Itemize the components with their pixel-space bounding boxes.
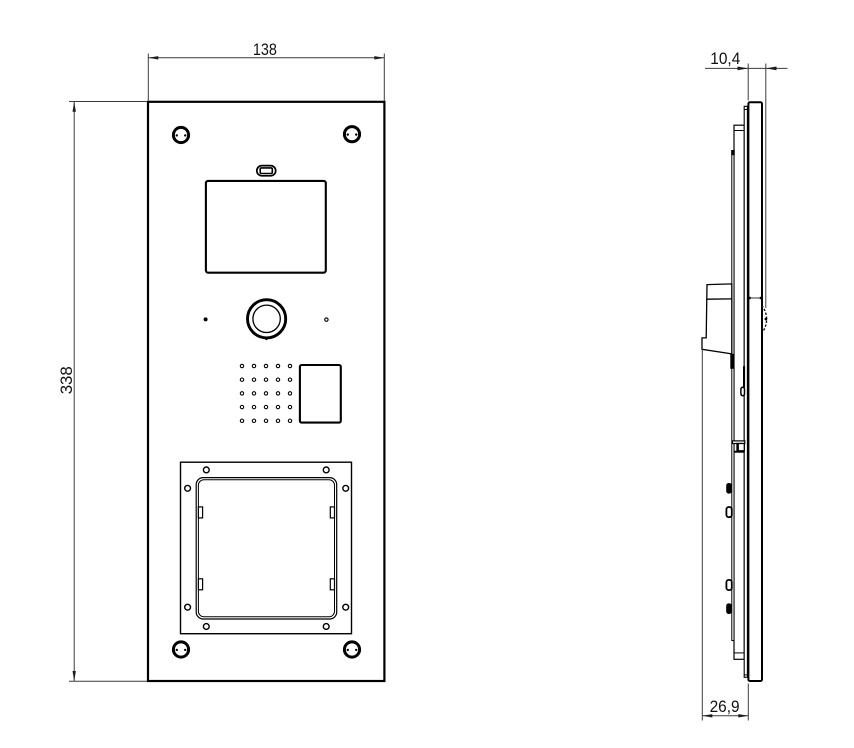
svg-text:10,4: 10,4 bbox=[710, 50, 740, 68]
svg-text:338: 338 bbox=[58, 366, 76, 394]
svg-text:26,9: 26,9 bbox=[710, 698, 740, 716]
svg-text:138: 138 bbox=[253, 41, 277, 59]
